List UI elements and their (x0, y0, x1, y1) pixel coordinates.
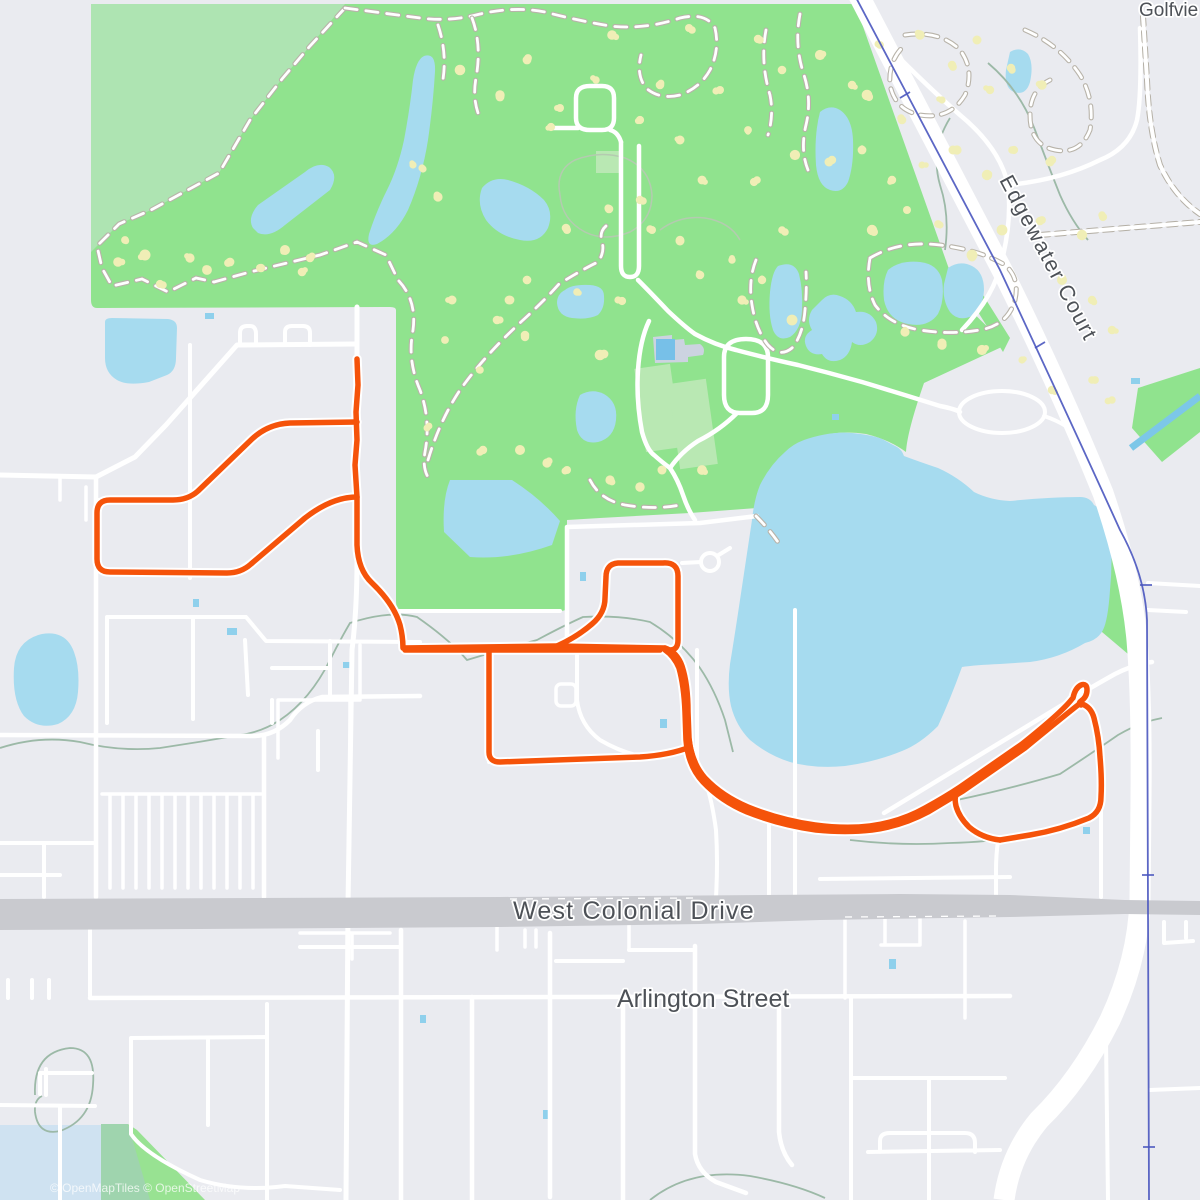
svg-text:© OpenMapTiles © OpenStreetMap: © OpenMapTiles © OpenStreetMap (50, 1181, 240, 1195)
svg-text:West Colonial Drive: West Colonial Drive (513, 897, 755, 925)
svg-text:Arlington Street: Arlington Street (617, 985, 789, 1013)
svg-text:Golfvie: Golfvie (1139, 0, 1198, 21)
